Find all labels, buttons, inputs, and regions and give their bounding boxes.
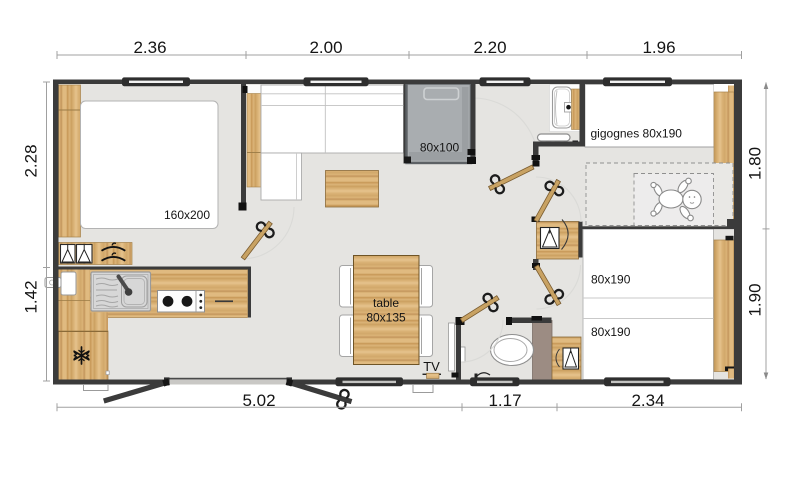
svg-text:gigognes 80x190: gigognes 80x190 <box>591 127 683 141</box>
svg-text:5.02: 5.02 <box>242 391 275 410</box>
svg-text:2.20: 2.20 <box>473 38 506 57</box>
svg-text:1.90: 1.90 <box>746 283 765 316</box>
svg-text:1.42: 1.42 <box>22 280 41 313</box>
svg-text:2.36: 2.36 <box>133 38 166 57</box>
svg-text:80x190: 80x190 <box>591 325 631 339</box>
svg-text:1.17: 1.17 <box>488 391 521 410</box>
svg-text:80x100: 80x100 <box>420 141 460 155</box>
svg-text:160x200: 160x200 <box>164 208 210 222</box>
svg-text:1.80: 1.80 <box>746 147 765 180</box>
svg-text:2.28: 2.28 <box>22 144 41 177</box>
svg-text:80x190: 80x190 <box>591 273 631 287</box>
svg-text:TV: TV <box>423 359 440 374</box>
svg-text:1.96: 1.96 <box>642 38 675 57</box>
svg-text:table: table <box>373 296 399 310</box>
svg-text:2.34: 2.34 <box>631 391 664 410</box>
svg-text:2.00: 2.00 <box>309 38 342 57</box>
svg-text:80x135: 80x135 <box>366 311 406 325</box>
